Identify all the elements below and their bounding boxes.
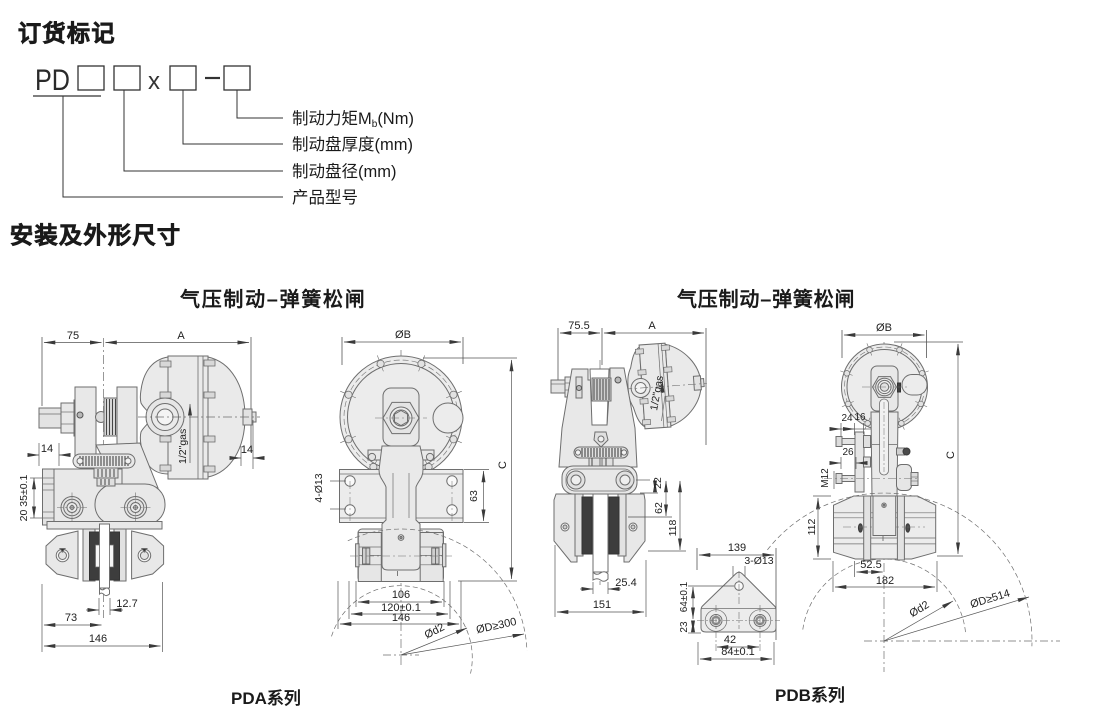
svg-text:M12: M12 — [820, 468, 831, 488]
svg-text:ØB: ØB — [876, 322, 892, 334]
svg-text:12.7: 12.7 — [116, 598, 137, 610]
svg-text:63: 63 — [468, 490, 480, 502]
svg-text:26: 26 — [842, 447, 854, 458]
svg-text:106: 106 — [392, 589, 410, 601]
svg-text:139: 139 — [728, 542, 746, 554]
svg-text:112: 112 — [806, 518, 818, 535]
svg-text:25.4: 25.4 — [615, 577, 636, 589]
svg-text:84±0.1: 84±0.1 — [721, 646, 755, 658]
svg-text:62: 62 — [653, 502, 665, 514]
svg-text:PDA系列: PDA系列 — [231, 688, 301, 708]
svg-text:182: 182 — [876, 575, 894, 587]
svg-text:146: 146 — [89, 633, 107, 645]
svg-text:PD: PD — [35, 64, 70, 97]
svg-text:75: 75 — [67, 330, 79, 342]
svg-text:73: 73 — [65, 612, 77, 624]
svg-text:安装及外形尺寸: 安装及外形尺寸 — [10, 222, 182, 248]
svg-text:14: 14 — [241, 444, 253, 456]
svg-text:4-Ø13: 4-Ø13 — [313, 473, 325, 502]
svg-text:制动盘厚度(mm): 制动盘厚度(mm) — [292, 135, 413, 154]
svg-text:PDB系列: PDB系列 — [775, 685, 845, 705]
svg-text:1/2"gas: 1/2"gas — [177, 429, 189, 464]
svg-text:16: 16 — [854, 412, 866, 423]
svg-text:42: 42 — [724, 634, 736, 646]
svg-text:A: A — [648, 320, 656, 332]
svg-text:64±0.1: 64±0.1 — [679, 581, 690, 612]
svg-text:C: C — [945, 451, 957, 459]
svg-text:x: x — [148, 68, 160, 95]
svg-text:气压制动–弹簧松闸: 气压制动–弹簧松闸 — [179, 287, 366, 311]
svg-text:24: 24 — [841, 413, 853, 424]
svg-text:ØB: ØB — [395, 329, 411, 341]
svg-text:146: 146 — [392, 612, 410, 624]
svg-text:151: 151 — [593, 599, 611, 611]
svg-text:22: 22 — [652, 477, 664, 489]
svg-text:C: C — [497, 461, 509, 469]
svg-text:20 35±0.1: 20 35±0.1 — [18, 475, 30, 522]
svg-text:75.5: 75.5 — [568, 320, 589, 332]
svg-text:制动盘径(mm): 制动盘径(mm) — [292, 162, 396, 181]
svg-text:A: A — [177, 330, 185, 342]
svg-text:118: 118 — [667, 519, 679, 536]
svg-text:制动力矩Mb(Nm): 制动力矩Mb(Nm) — [292, 109, 414, 130]
svg-text:产品型号: 产品型号 — [292, 188, 358, 207]
svg-text:14: 14 — [41, 443, 53, 455]
svg-text:气压制动–弹簧松闸: 气压制动–弹簧松闸 — [676, 287, 855, 311]
svg-text:23: 23 — [679, 621, 690, 633]
svg-text:3-Ø13: 3-Ø13 — [744, 555, 773, 567]
svg-text:52.5: 52.5 — [860, 559, 881, 571]
svg-text:订货标记: 订货标记 — [18, 20, 116, 46]
